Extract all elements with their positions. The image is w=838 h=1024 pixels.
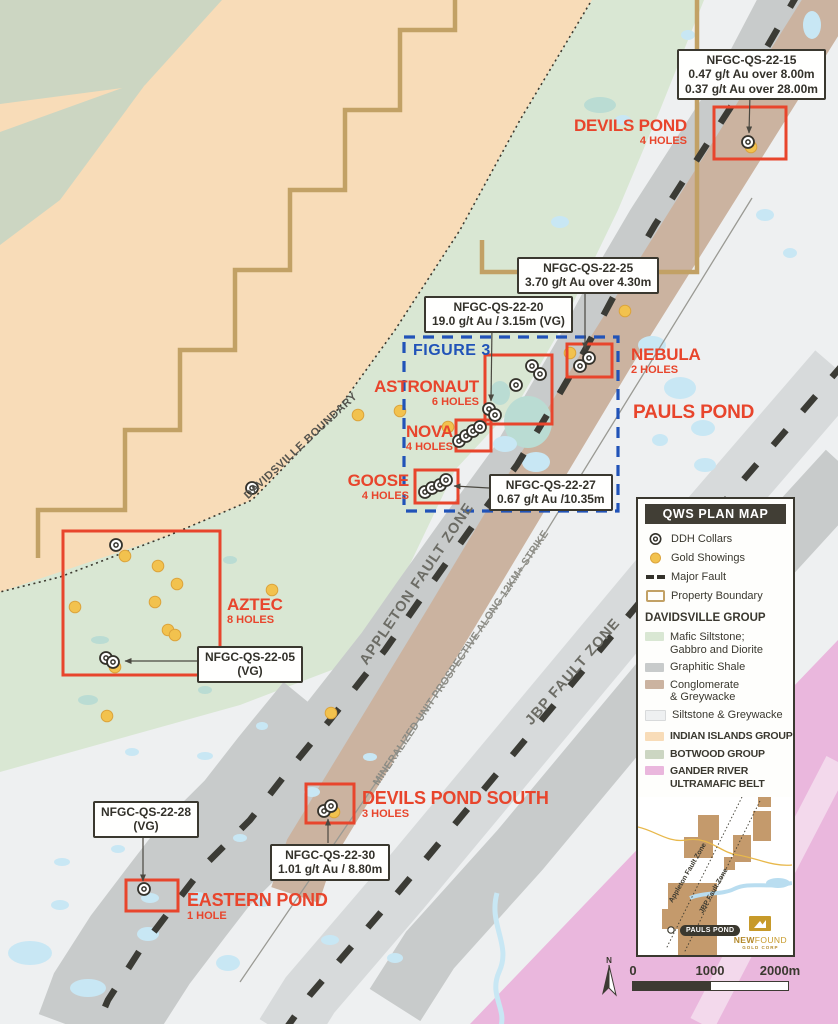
callout-nfgc-qs-22-05: NFGC-QS-22-05(VG) [197, 646, 303, 683]
prospect-holes-astronaut: 6 HOLES [374, 397, 479, 408]
logo-text-new: NEW [734, 935, 755, 945]
prospect-name-aztec: AZTEC [227, 596, 283, 613]
legend-label: Mafic Siltstone; Gabbro and Diorite [670, 631, 763, 656]
legend-swatch [645, 663, 664, 672]
prospect-holes-devils-pond: 4 HOLES [574, 136, 687, 147]
prospect-label-devils-pond: DEVILS POND4 HOLES [574, 117, 687, 148]
inset-pauls-pond-marker [668, 927, 674, 933]
callout-line: NFGC-QS-22-15 [685, 53, 818, 67]
callout-line: NFGC-QS-22-05 [205, 650, 295, 664]
area-label-pauls-pond: PAULS POND [633, 403, 754, 422]
callout-line: 19.0 g/t Au / 3.15m (VG) [432, 314, 565, 328]
legend-item-gold-showings: Gold Showings [638, 551, 793, 565]
legend-label: GANDER RIVER ULTRAMAFIC BELT [670, 765, 765, 790]
callout-line: (VG) [205, 664, 295, 678]
scale-tick-0: 0 [629, 963, 636, 978]
legend-group-title: DAVIDSVILLE GROUP [638, 612, 793, 624]
scale-bar: N 0 1000 2000m [597, 951, 812, 1001]
legend-item-ddh-collars: DDH Collars [638, 532, 793, 546]
map-label-mineralized-unit-prospective-a: MINERALIZED UNIT PROSPECTIVE ALONG 12KM+… [371, 528, 552, 788]
prospect-name-astronaut: ASTRONAUT [374, 378, 479, 395]
ddh-collar-icon [645, 532, 665, 546]
qws-plan-map: FIGURE 3DEVILS POND4 HOLESNEBULA2 HOLESA… [0, 0, 838, 1024]
callout-line: NFGC-QS-22-25 [525, 261, 651, 275]
scale-tick-1000: 1000 [696, 963, 725, 978]
prospect-label-nova: NOVA4 HOLES [406, 423, 453, 454]
callout-line: 0.37 g/t Au over 28.00m [685, 82, 818, 96]
logo-text-gold-corp: GOLD CORP [734, 945, 787, 950]
legend-groups: INDIAN ISLANDS GROUPBOTWOOD GROUPGANDER … [638, 730, 793, 790]
legend-item-conglomerate: Conglomerate & Greywacke [638, 679, 793, 704]
prospect-label-goose: GOOSE4 HOLES [348, 472, 409, 503]
prospect-holes-nova: 4 HOLES [406, 442, 453, 453]
prospect-name-nova: NOVA [406, 423, 453, 440]
prospect-holes-aztec: 8 HOLES [227, 615, 283, 626]
area-label-text: PAULS POND [633, 403, 754, 422]
callout-line: NFGC-QS-22-30 [278, 848, 382, 862]
prospect-label-devils-pond-south: DEVILS POND SOUTH3 HOLES [362, 789, 549, 821]
legend-swatch [645, 766, 664, 775]
legend-item-botwood-group: BOTWOOD GROUP [638, 748, 793, 761]
scale-bar-graphic [632, 981, 789, 991]
newfound-gold-logo: NEWFOUND GOLD CORP [734, 916, 787, 951]
prospect-holes-eastern-pond: 1 HOLE [187, 911, 328, 922]
legend-swatch [645, 632, 664, 641]
prospect-name-eastern-pond: EASTERN POND [187, 891, 328, 909]
callout-line: 0.47 g/t Au over 8.00m [685, 67, 818, 81]
legend-label: Conglomerate & Greywacke [670, 679, 739, 704]
legend-swatch [645, 680, 664, 689]
north-arrow: N [599, 957, 619, 1002]
prospect-name-goose: GOOSE [348, 472, 409, 489]
callout-nfgc-qs-22-20: NFGC-QS-22-2019.0 g/t Au / 3.15m (VG) [424, 296, 573, 333]
logo-text-found: FOUND [755, 935, 787, 945]
legend-item-graphitic-shale: Graphitic Shale [638, 661, 793, 674]
prospect-label-astronaut: ASTRONAUT6 HOLES [374, 378, 479, 409]
legend-label: Graphitic Shale [670, 661, 745, 674]
major-fault-icon [645, 570, 665, 584]
north-arrow-icon [601, 965, 617, 997]
legend-symbols: DDH CollarsGold ShowingsMajor FaultPrope… [638, 532, 793, 603]
inset-pauls-pond-badge: PAULS POND [680, 925, 740, 936]
north-label: N [599, 957, 619, 965]
legend-label: Major Fault [671, 571, 726, 584]
legend-swatch [645, 750, 664, 759]
legend-swatch [645, 732, 664, 741]
prospect-label-nebula: NEBULA2 HOLES [631, 346, 701, 377]
prospect-holes-devils-pond-south: 3 HOLES [362, 809, 549, 820]
prospect-holes-goose: 4 HOLES [348, 491, 409, 502]
scale-tick-2000m: 2000m [760, 963, 800, 978]
callout-line: (VG) [101, 819, 191, 833]
callout-nfgc-qs-22-15: NFGC-QS-22-150.47 g/t Au over 8.00m0.37 … [677, 49, 826, 100]
legend-units: Mafic Siltstone; Gabbro and DioriteGraph… [638, 631, 793, 721]
legend-label: BOTWOOD GROUP [670, 748, 765, 761]
prospect-label-eastern-pond: EASTERN POND1 HOLE [187, 891, 328, 923]
property-boundary-icon [645, 589, 665, 603]
map-label-jbp-fault-zone: JBP FAULT ZONE [522, 615, 623, 728]
callout-nfgc-qs-22-28: NFGC-QS-22-28(VG) [93, 801, 199, 838]
legend-item-property-boundary: Property Boundary [638, 589, 793, 603]
prospect-label-aztec: AZTEC8 HOLES [227, 596, 283, 627]
gold-showing-icon [645, 551, 665, 565]
newfound-logo-icon [749, 916, 771, 931]
prospect-holes-nebula: 2 HOLES [631, 365, 701, 376]
prospect-name-devils-pond-south: DEVILS POND SOUTH [362, 789, 549, 807]
figure-3-label: FIGURE 3 [413, 342, 491, 360]
legend-label: Property Boundary [671, 590, 763, 603]
callout-nfgc-qs-22-27: NFGC-QS-22-270.67 g/t Au /10.35m [489, 474, 613, 511]
legend-label: INDIAN ISLANDS GROUP [670, 730, 793, 743]
prospect-name-devils-pond: DEVILS POND [574, 117, 687, 134]
legend-title: QWS PLAN MAP [645, 504, 786, 524]
inset-location-map: Appleton Fault Zone JBP Fault Zone PAULS… [638, 797, 792, 955]
legend-item-siltstone-greywacke: Siltstone & Greywacke [638, 709, 793, 722]
legend-panel: QWS PLAN MAP DDH CollarsGold ShowingsMaj… [636, 497, 795, 957]
legend-label: Gold Showings [671, 552, 745, 565]
callout-line: 1.01 g/t Au / 8.80m [278, 862, 382, 876]
callout-line: 0.67 g/t Au /10.35m [497, 492, 605, 506]
legend-swatch [645, 710, 666, 721]
legend-label: DDH Collars [671, 533, 732, 546]
callout-nfgc-qs-22-30: NFGC-QS-22-301.01 g/t Au / 8.80m [270, 844, 390, 881]
callout-nfgc-qs-22-25: NFGC-QS-22-253.70 g/t Au over 4.30m [517, 257, 659, 294]
legend-item-indian-islands-group: INDIAN ISLANDS GROUP [638, 730, 793, 743]
map-label-davidsville-boundary: DAVIDSVILLE BOUNDARY [242, 390, 360, 501]
legend-item-gander-river: GANDER RIVER ULTRAMAFIC BELT [638, 765, 793, 790]
legend-item-major-fault: Major Fault [638, 570, 793, 584]
callout-line: NFGC-QS-22-28 [101, 805, 191, 819]
callout-line: NFGC-QS-22-20 [432, 300, 565, 314]
map-label-appleton-fault-zone: APPLETON FAULT ZONE [357, 500, 477, 668]
callout-line: 3.70 g/t Au over 4.30m [525, 275, 651, 289]
prospect-name-nebula: NEBULA [631, 346, 701, 363]
legend-label: Siltstone & Greywacke [672, 709, 783, 722]
callout-line: NFGC-QS-22-27 [497, 478, 605, 492]
legend-item-mafic-siltstone: Mafic Siltstone; Gabbro and Diorite [638, 631, 793, 656]
